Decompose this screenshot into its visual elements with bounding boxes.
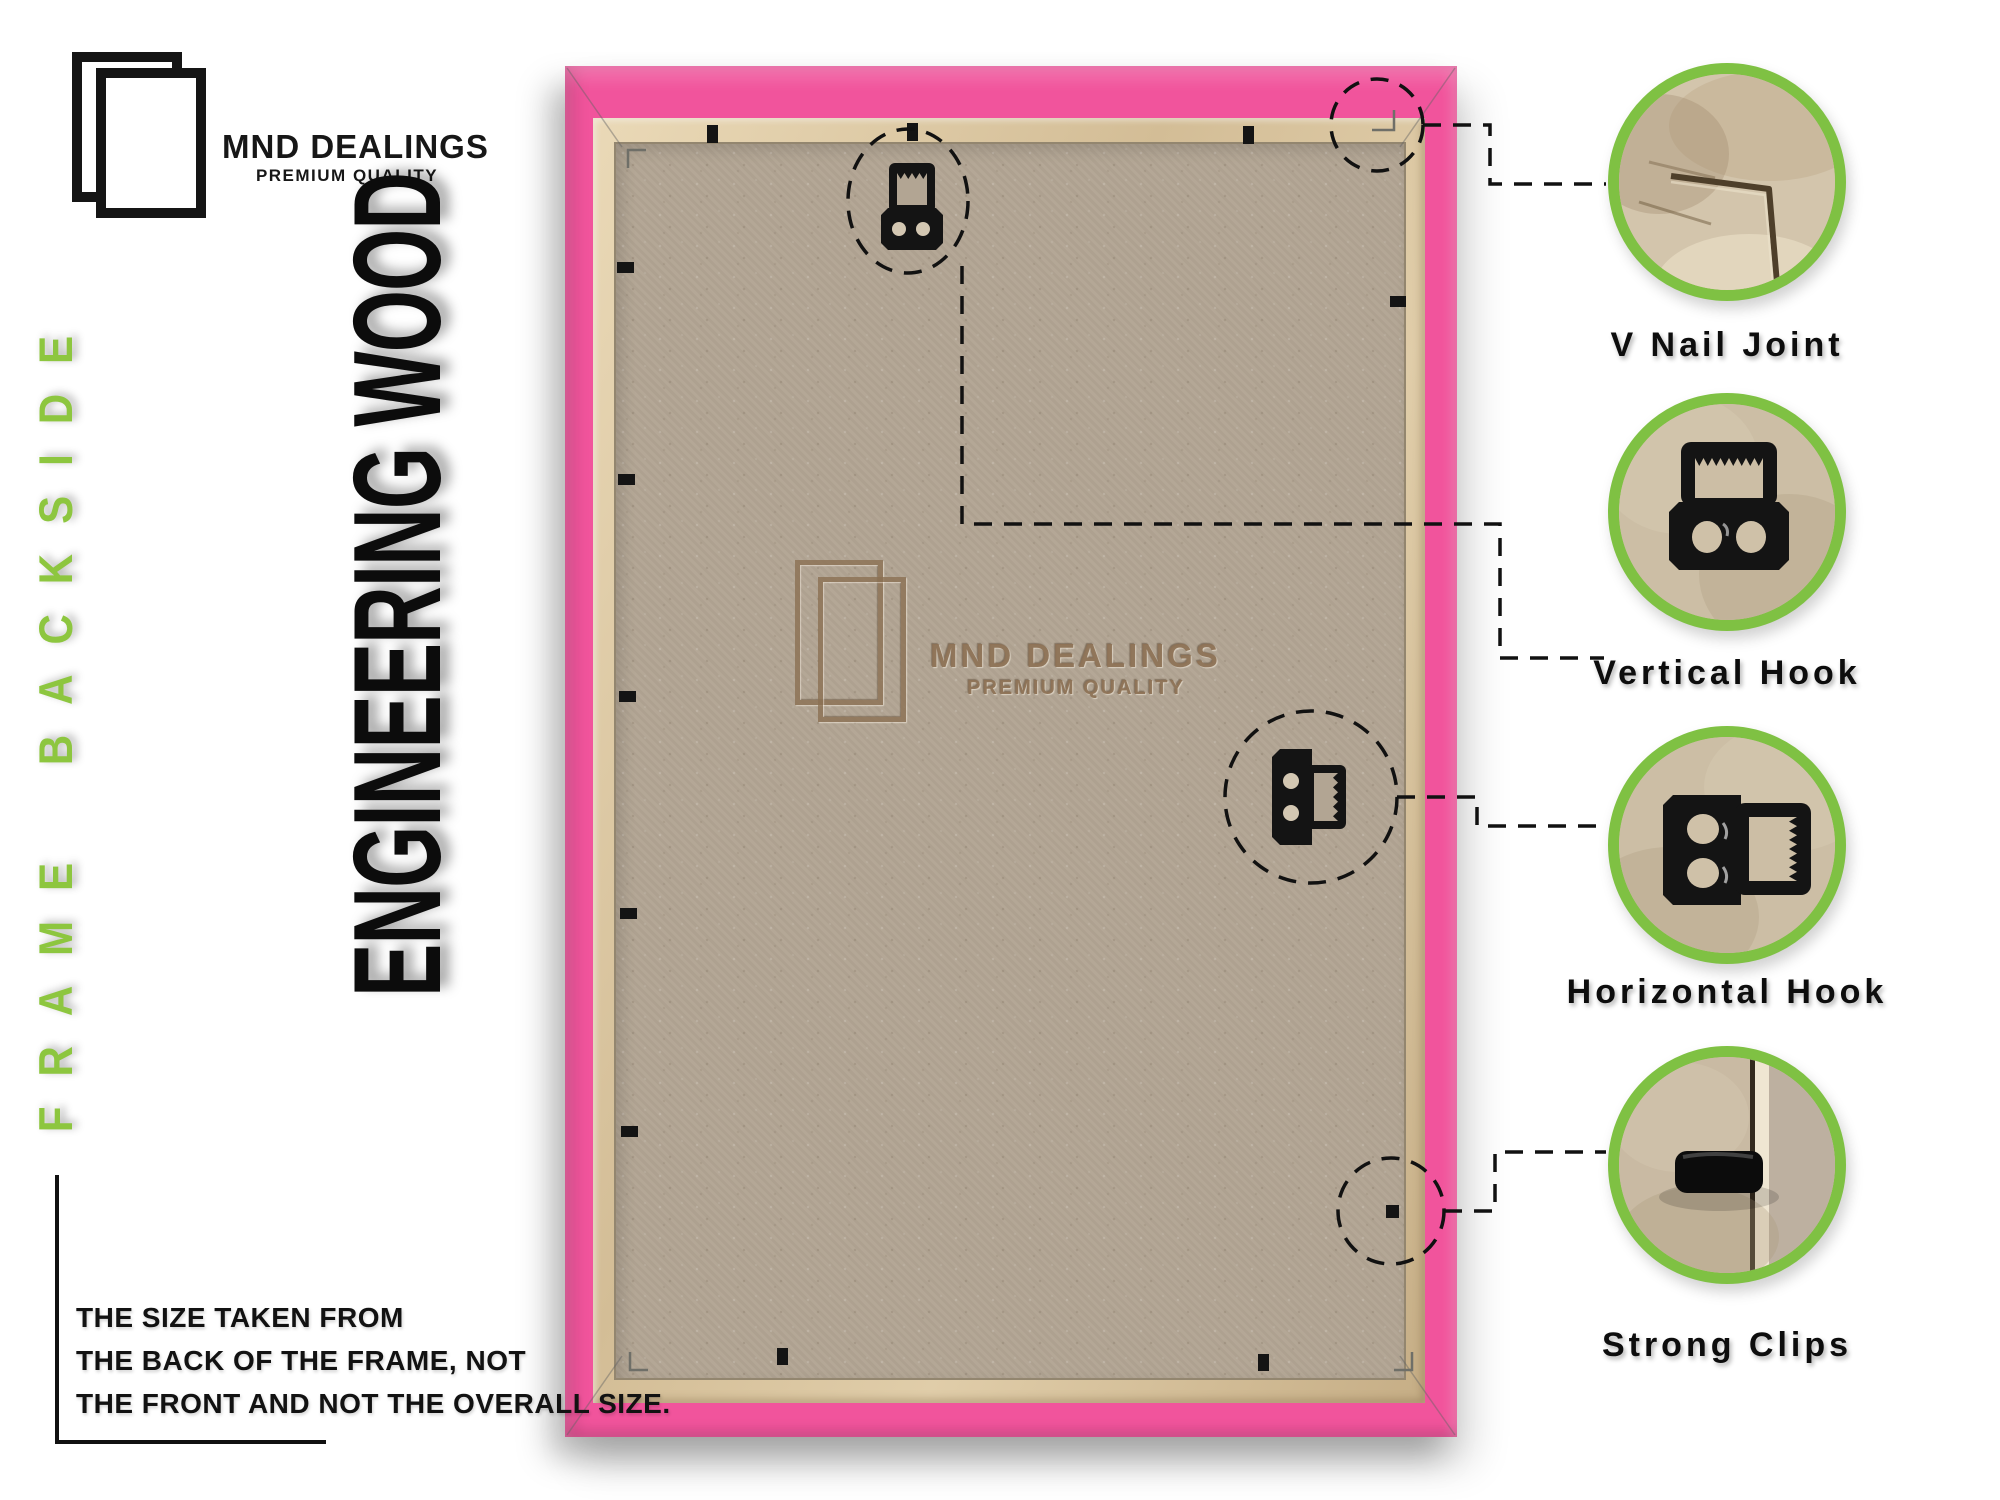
mdf-backboard [616, 144, 1404, 1378]
double-frame-icon [96, 68, 206, 218]
v-nail-joint-photo [1608, 63, 1846, 301]
strong-clip-photo [1608, 1046, 1846, 1284]
vertical-hook-art [1619, 404, 1835, 620]
connector-strong-clips [1444, 1152, 1606, 1211]
strong-clip-art [1619, 1057, 1835, 1273]
watermark-name: MND DEALINGS [930, 637, 1221, 675]
footnote-line: THE BACK OF THE FRAME, NOT [76, 1345, 526, 1377]
vertical-hook-photo [1608, 393, 1846, 631]
brand-name: MND DEALINGS [222, 128, 489, 166]
watermark-double-frame-icon [818, 577, 906, 722]
product-infographic: MND DEALINGS PREMIUM QUALITY FRAME BACKS… [0, 0, 2000, 1500]
horizontal-hook-art [1619, 737, 1835, 953]
v-nail-joint-art [1619, 74, 1835, 290]
watermark-tagline: PREMIUM QUALITY [930, 677, 1222, 700]
footnote-line: THE SIZE TAKEN FROM [76, 1302, 404, 1334]
horizontal-hook-photo [1608, 726, 1846, 964]
footnote-line: THE FRONT AND NOT THE OVERALL SIZE. [76, 1388, 671, 1420]
